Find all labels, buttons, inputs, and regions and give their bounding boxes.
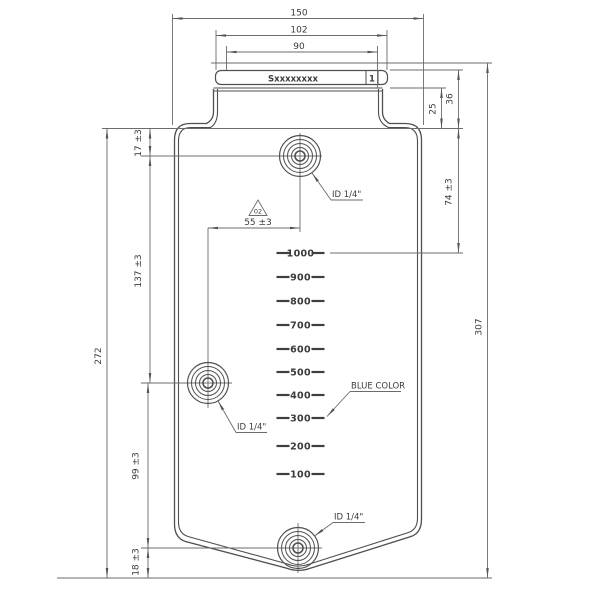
graduation-row: 500 <box>277 368 325 379</box>
dim-90-text: 90 <box>293 42 305 52</box>
port-side-label: ID 1/4" <box>218 401 267 433</box>
graduation-row: 1000 <box>277 249 325 260</box>
revision-triangle-text: 02 <box>254 208 262 216</box>
dim-307-text: 307 <box>475 318 485 335</box>
label-plate: Sxxxxxxxx 1 <box>214 71 388 92</box>
dimension-top-port-to-side-port: 137 ±3 <box>134 156 150 383</box>
graduation-row: 200 <box>277 442 325 453</box>
plate-serial-text: Sxxxxxxxx <box>268 75 319 85</box>
dimension-height-overall: 307 <box>475 63 488 578</box>
dim-99-text: 99 ±3 <box>132 452 142 480</box>
dimension-bottom-port-to-base: 18 ±3 <box>132 548 149 578</box>
graduation-label: 900 <box>290 273 311 284</box>
technical-drawing-page: Sxxxxxxxx 1 150 102 90 36 <box>0 0 600 600</box>
graduation-row: 600 <box>277 345 325 356</box>
color-note: BLUE COLOR <box>327 382 405 417</box>
dimension-width-plate: 102 <box>216 26 387 36</box>
graduation-scale: 1000 900 800 700 600 500 400 300 <box>277 249 325 481</box>
dim-150-text: 150 <box>290 9 307 19</box>
dimension-side-port-to-bottom-port: 99 ±3 <box>132 383 149 548</box>
dim-36-text: 36 <box>446 93 456 105</box>
dim-17-text: 17 ±3 <box>134 129 144 157</box>
graduation-label: 300 <box>290 414 311 425</box>
graduation-row: 800 <box>277 297 325 308</box>
dim-137-text: 137 ±3 <box>134 254 144 287</box>
plate-cell-text: 1 <box>369 75 375 85</box>
dim-55-text: 55 ±3 <box>244 218 272 228</box>
graduation-label: 200 <box>290 442 311 453</box>
extension-lines <box>57 14 492 578</box>
graduation-label: 400 <box>290 391 311 402</box>
graduation-row: 100 <box>277 470 325 481</box>
dim-272-text: 272 <box>94 347 104 364</box>
graduation-label: 700 <box>290 321 311 332</box>
port-bottom-label-text: ID 1/4" <box>334 513 363 523</box>
dimension-port-offset: 55 ±3 02 <box>208 200 300 228</box>
dimension-width-overall: 150 <box>173 9 424 19</box>
graduation-label: 800 <box>290 297 311 308</box>
port-side-label-text: ID 1/4" <box>237 423 266 433</box>
dimension-shoulder-to-top-port: 17 ±3 <box>134 129 150 157</box>
graduation-label: 500 <box>290 368 311 379</box>
port-bottom-label: ID 1/4" <box>315 513 366 537</box>
dim-25-text: 25 <box>429 103 439 114</box>
dim-102-text: 102 <box>290 26 307 36</box>
dimension-width-plate-inner: 90 <box>227 42 378 52</box>
graduation-row: 900 <box>277 273 325 284</box>
dimension-neck-height: 36 <box>446 70 459 129</box>
dimension-body-height: 272 <box>94 129 107 579</box>
graduation-row: 400 <box>277 391 325 402</box>
graduation-row: 300 <box>277 414 325 425</box>
color-note-text: BLUE COLOR <box>351 382 405 392</box>
port-top-label-text: ID 1/4" <box>332 190 361 200</box>
graduation-label: 600 <box>290 345 311 356</box>
port-top-label: ID 1/4" <box>312 173 363 200</box>
dim-74-text: 74 ±3 <box>445 178 455 206</box>
graduation-row: 700 <box>277 321 325 332</box>
graduation-label: 100 <box>290 470 311 481</box>
graduation-label: 1000 <box>287 249 315 260</box>
dimension-shoulder-to-max-level: 74 ±3 <box>445 129 459 254</box>
dimension-plate-to-shoulder: 25 <box>429 88 442 129</box>
tank-drawing: Sxxxxxxxx 1 150 102 90 36 <box>0 0 600 600</box>
dim-18-text: 18 ±3 <box>132 548 142 576</box>
